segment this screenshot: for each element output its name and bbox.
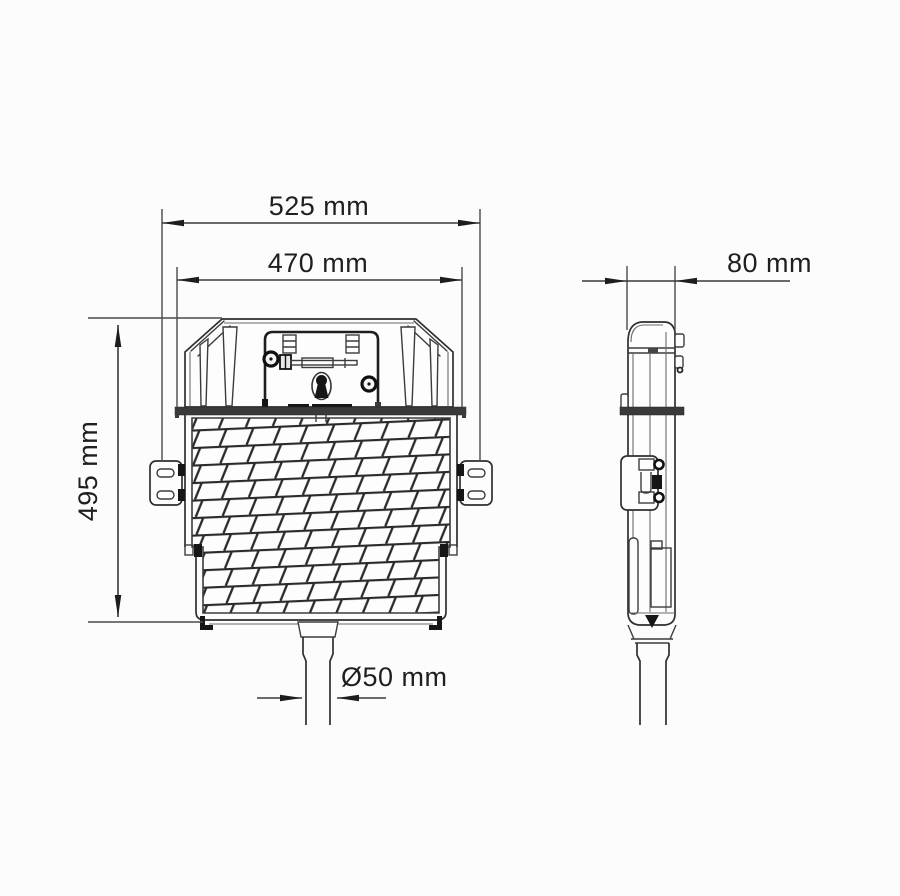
arrowhead-down-icon [115,595,122,617]
side-seam-notch [648,348,658,353]
arrowhead-right-icon [280,695,302,702]
screw-right-icon [362,377,376,391]
dimension-outlet-diameter: Ø50 mm [257,662,448,701]
bracket-screw-icon [655,493,664,502]
drawing-canvas: 525 mm 470 mm 495 mm 80 mm Ø50 mm [0,0,900,896]
side-lower-left-panel [629,538,638,614]
bracket-latch [652,475,662,489]
cistern-technical-drawing: 525 mm 470 mm 495 mm 80 mm Ø50 mm [0,0,900,896]
side-tab-screw-icon [678,368,683,373]
screw-left-icon [264,352,278,366]
arrowhead-left-icon [177,277,199,284]
arrowhead-left-icon [337,695,359,702]
dimension-label-outer-width: 525 mm [269,191,370,221]
tank-hatched-face [192,418,450,613]
dimension-label-height: 495 mm [73,421,103,522]
arrowhead-right-icon [458,220,480,227]
side-rim-band [620,407,684,415]
arrowhead-left-icon [162,220,184,227]
outlet-pipe-side [628,625,676,725]
lid-rib [430,339,438,406]
tank-body [185,415,457,630]
bracket-screw-icon [655,460,664,469]
lid-rib [200,339,208,406]
arrowhead-right-icon [440,277,462,284]
side-tab-lower [675,356,683,368]
arrowhead-right-icon [605,278,627,285]
tank-foot-right [429,616,442,630]
side-tab-upper [675,334,684,347]
side-wall-bracket [621,456,664,510]
dimension-label-tank-width: 470 mm [268,248,369,278]
wall-bracket-left [150,461,185,505]
dimension-depth: 80 mm [582,248,812,332]
keyhole-icon [312,373,331,400]
side-view [620,322,684,725]
dimension-label-depth: 80 mm [727,248,812,278]
tank-rim-band [175,407,466,418]
wall-bracket-right [457,461,492,505]
outlet-pipe-front [298,622,338,725]
arrowhead-left-icon [675,278,697,285]
dimension-label-outlet-diameter: Ø50 mm [341,662,448,692]
arrowhead-up-icon [115,325,122,347]
tank-foot-left [200,616,213,630]
